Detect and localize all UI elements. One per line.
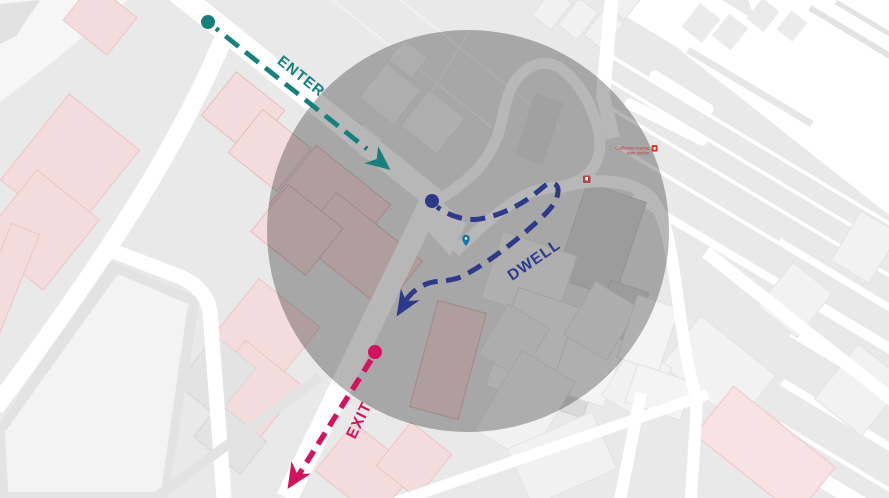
svg-text:train station: train station xyxy=(627,151,650,156)
